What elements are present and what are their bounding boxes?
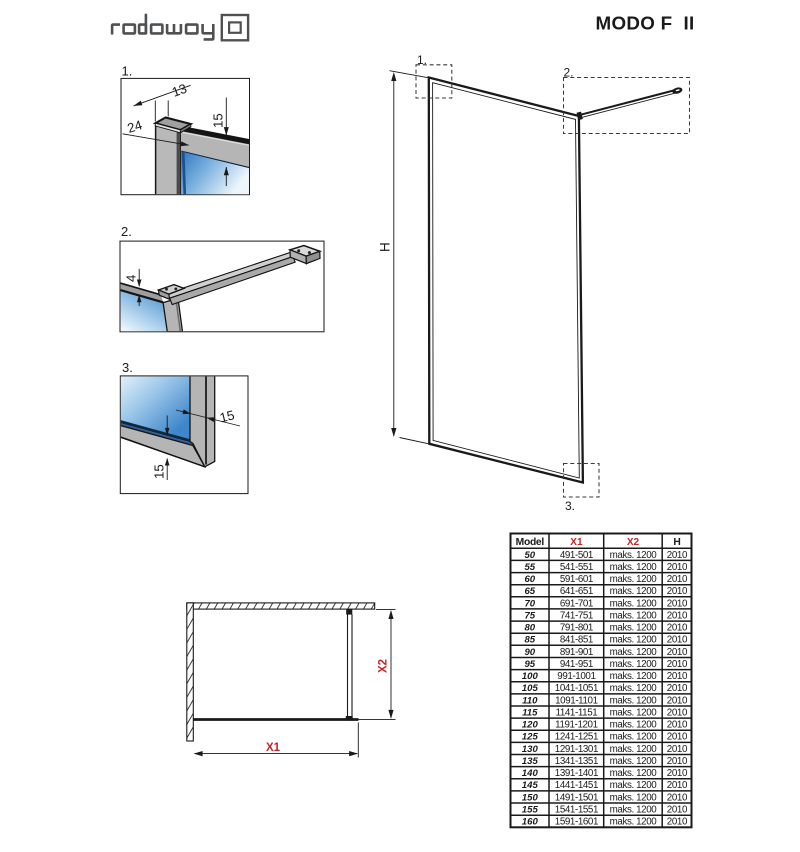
svg-text:541-551: 541-551 (560, 562, 593, 573)
svg-text:2010: 2010 (667, 586, 688, 597)
svg-text:maks. 1200: maks. 1200 (610, 586, 658, 597)
svg-text:75: 75 (524, 610, 535, 621)
svg-text:100: 100 (522, 671, 539, 682)
svg-text:1291-1301: 1291-1301 (555, 744, 598, 755)
svg-text:2010: 2010 (667, 610, 688, 621)
svg-text:1341-1351: 1341-1351 (555, 756, 598, 767)
svg-text:1091-1101: 1091-1101 (555, 695, 598, 706)
svg-text:maks. 1200: maks. 1200 (610, 720, 658, 731)
svg-text:941-951: 941-951 (560, 659, 593, 670)
svg-text:4: 4 (124, 275, 139, 282)
svg-text:2010: 2010 (667, 695, 688, 706)
svg-text:1391-1401: 1391-1401 (555, 768, 598, 779)
svg-text:60: 60 (524, 574, 535, 585)
svg-text:691-701: 691-701 (560, 598, 593, 609)
svg-text:maks. 1200: maks. 1200 (610, 695, 658, 706)
svg-text:maks. 1200: maks. 1200 (610, 671, 658, 682)
svg-text:110: 110 (522, 695, 538, 706)
svg-text:135: 135 (522, 756, 539, 767)
svg-text:791-801: 791-801 (560, 623, 593, 634)
svg-text:2010: 2010 (667, 683, 688, 694)
svg-text:85: 85 (524, 635, 535, 646)
svg-text:2010: 2010 (667, 598, 688, 609)
svg-text:491-501: 491-501 (560, 550, 593, 561)
svg-text:24: 24 (125, 117, 143, 136)
svg-text:105: 105 (522, 683, 539, 694)
svg-text:130: 130 (522, 744, 539, 755)
svg-text:2010: 2010 (667, 720, 688, 731)
svg-text:maks. 1200: maks. 1200 (610, 732, 658, 743)
svg-text:1191-1201: 1191-1201 (555, 720, 598, 731)
svg-text:2010: 2010 (667, 635, 688, 646)
svg-text:X1: X1 (570, 537, 583, 548)
svg-text:maks. 1200: maks. 1200 (610, 635, 658, 646)
svg-text:X2: X2 (627, 537, 640, 548)
svg-text:13: 13 (170, 81, 189, 100)
svg-text:1141-1151: 1141-1151 (556, 708, 598, 719)
svg-text:2010: 2010 (667, 805, 688, 816)
svg-text:maks. 1200: maks. 1200 (610, 744, 658, 755)
svg-text:2010: 2010 (667, 659, 688, 670)
svg-text:maks. 1200: maks. 1200 (610, 598, 658, 609)
svg-text:maks. 1200: maks. 1200 (610, 562, 658, 573)
svg-text:maks. 1200: maks. 1200 (610, 780, 658, 791)
svg-text:641-651: 641-651 (560, 586, 593, 597)
svg-text:maks. 1200: maks. 1200 (610, 623, 658, 634)
svg-text:2010: 2010 (667, 768, 688, 779)
svg-text:65: 65 (524, 586, 535, 597)
svg-text:maks. 1200: maks. 1200 (610, 756, 658, 767)
svg-text:145: 145 (522, 780, 539, 791)
svg-text:2010: 2010 (667, 671, 688, 682)
svg-text:125: 125 (522, 732, 539, 743)
svg-text:2010: 2010 (667, 550, 688, 561)
svg-text:55: 55 (524, 562, 535, 573)
svg-text:2010: 2010 (667, 780, 688, 791)
svg-text:115: 115 (522, 708, 538, 719)
svg-text:2010: 2010 (667, 708, 688, 719)
svg-text:maks. 1200: maks. 1200 (610, 805, 658, 816)
svg-text:2010: 2010 (667, 744, 688, 755)
svg-text:120: 120 (522, 720, 539, 731)
svg-text:2.: 2. (121, 224, 132, 239)
svg-text:maks. 1200: maks. 1200 (610, 817, 658, 828)
svg-text:2010: 2010 (667, 756, 688, 767)
svg-text:15: 15 (152, 464, 167, 479)
svg-text:155: 155 (522, 805, 539, 816)
svg-text:1041-1051: 1041-1051 (555, 683, 598, 694)
svg-text:15: 15 (211, 113, 226, 128)
svg-text:2010: 2010 (667, 562, 688, 573)
svg-text:1241-1251: 1241-1251 (555, 732, 598, 743)
svg-text:2010: 2010 (667, 792, 688, 803)
svg-text:maks. 1200: maks. 1200 (610, 574, 658, 585)
svg-text:maks. 1200: maks. 1200 (610, 550, 658, 561)
svg-text:741-751: 741-751 (560, 610, 593, 621)
svg-text:891-901: 891-901 (560, 647, 593, 658)
svg-text:maks. 1200: maks. 1200 (610, 792, 658, 803)
svg-text:2010: 2010 (667, 623, 688, 634)
svg-text:2010: 2010 (667, 732, 688, 743)
svg-text:2010: 2010 (667, 817, 688, 828)
svg-text:2010: 2010 (667, 574, 688, 585)
svg-text:1491-1501: 1491-1501 (555, 792, 598, 803)
svg-text:maks. 1200: maks. 1200 (610, 659, 658, 670)
svg-text:MODO F II: MODO F II (596, 13, 695, 34)
svg-text:1541-1551: 1541-1551 (555, 805, 598, 816)
svg-text:991-1001: 991-1001 (557, 671, 595, 682)
svg-text:H: H (378, 242, 393, 252)
svg-text:80: 80 (524, 623, 535, 634)
svg-text:X2: X2 (378, 659, 390, 673)
svg-text:maks. 1200: maks. 1200 (610, 610, 658, 621)
svg-text:591-601: 591-601 (560, 574, 593, 585)
svg-text:1441-1451: 1441-1451 (555, 780, 598, 791)
svg-text:95: 95 (524, 659, 535, 670)
svg-text:140: 140 (522, 768, 539, 779)
svg-text:2010: 2010 (667, 647, 688, 658)
svg-text:X1: X1 (266, 742, 281, 754)
svg-text:90: 90 (524, 647, 535, 658)
svg-text:1591-1601: 1591-1601 (555, 817, 598, 828)
svg-text:841-851: 841-851 (560, 635, 593, 646)
svg-text:15: 15 (218, 407, 236, 425)
svg-text:H: H (673, 537, 680, 548)
svg-text:maks. 1200: maks. 1200 (610, 708, 658, 719)
svg-text:3.: 3. (122, 360, 133, 375)
svg-text:maks. 1200: maks. 1200 (610, 683, 658, 694)
svg-text:maks. 1200: maks. 1200 (610, 647, 658, 658)
svg-text:3.: 3. (565, 499, 575, 513)
svg-text:50: 50 (524, 550, 535, 561)
svg-text:Model: Model (516, 537, 545, 548)
svg-text:maks. 1200: maks. 1200 (610, 768, 658, 779)
svg-text:1.: 1. (122, 64, 133, 79)
svg-text:160: 160 (522, 817, 539, 828)
svg-text:70: 70 (524, 598, 535, 609)
svg-text:150: 150 (522, 792, 539, 803)
